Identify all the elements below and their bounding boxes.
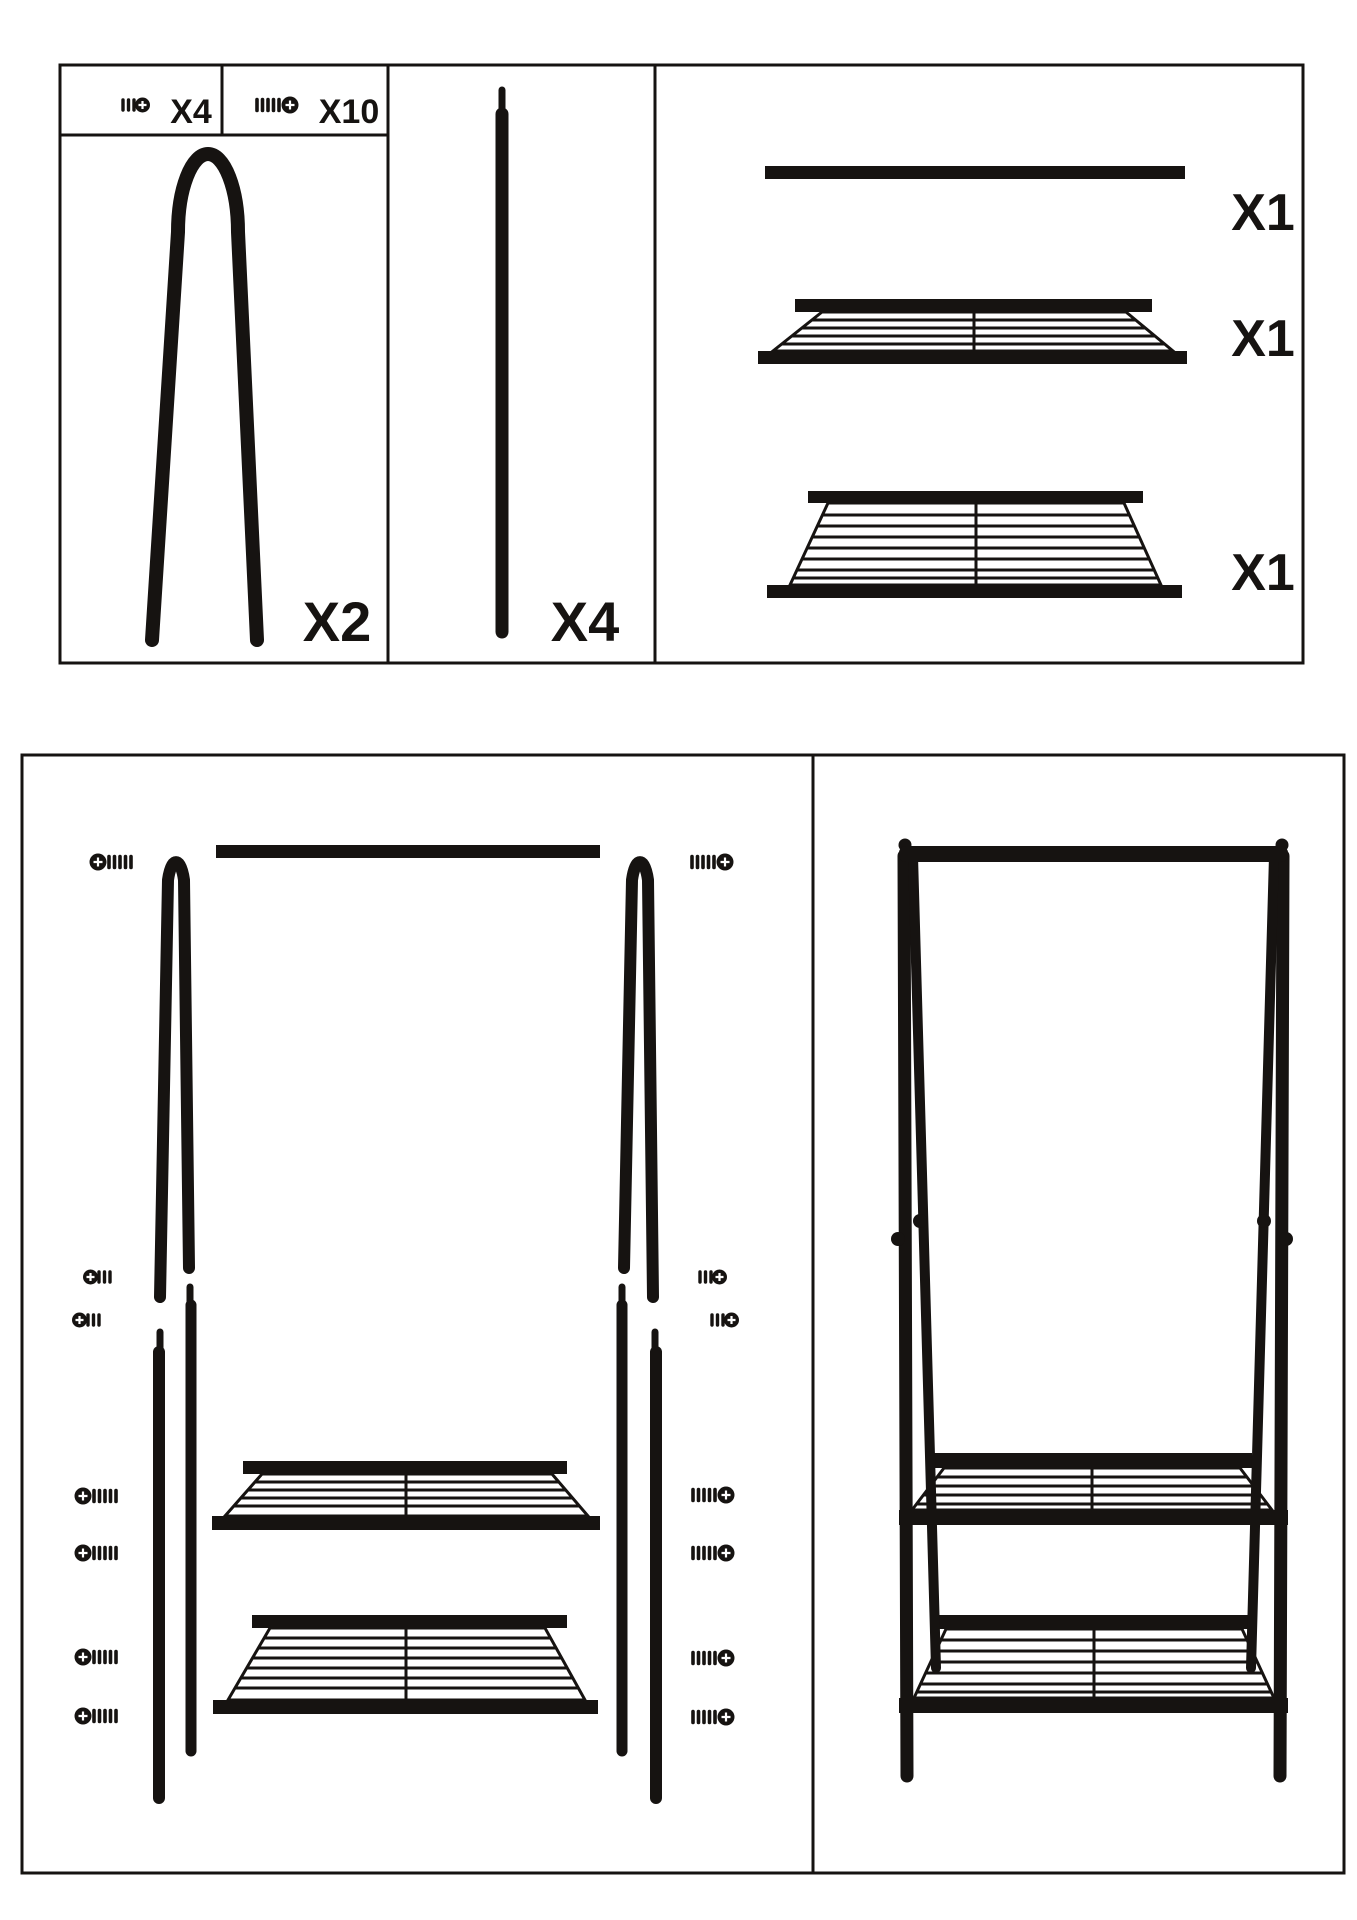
joint-knob	[913, 1214, 927, 1228]
assembled-shelf-lower-back-bar	[934, 1615, 1254, 1629]
exploded-shelf-lower-front-bar	[213, 1700, 598, 1714]
hanging-rod-part	[765, 166, 1185, 179]
shelf-lower-front-bar	[767, 585, 1182, 598]
screw-long-icon	[693, 1545, 735, 1562]
hanging-rod-qty-label: X1	[1231, 184, 1295, 242]
exploded-hanging-rod	[216, 845, 600, 858]
assembled-shelf-upper-back-bar	[932, 1453, 1252, 1468]
screw-short-qty-label: X4	[170, 93, 212, 131]
exploded-view	[72, 845, 739, 1798]
assembled-joint-knobs	[891, 1214, 1293, 1246]
shelf-upper-qty-label: X1	[1231, 310, 1295, 368]
screw-short-icon	[712, 1313, 739, 1328]
screw-long-icon	[693, 1709, 735, 1726]
shelf-upper-back-bar	[795, 299, 1152, 312]
assembled-shelf-upper	[912, 1453, 1272, 1510]
shelf-lower-part	[767, 491, 1182, 598]
assembled-left-front-leg	[904, 856, 907, 1776]
a-frame-qty-label: X2	[303, 590, 372, 653]
assembled-view	[891, 839, 1293, 1777]
screw-long-icon	[75, 1488, 117, 1505]
screw-long-icon	[75, 1545, 117, 1562]
joint-knob	[891, 1232, 905, 1246]
parts-box: X4 X10 X2 X4 X1 X1	[60, 65, 1303, 663]
joint-knob	[1279, 1232, 1293, 1246]
exploded-screws-right	[692, 854, 739, 1726]
shelf-upper-front-bar	[758, 351, 1187, 364]
assembly-box	[22, 755, 1344, 1873]
shelf-upper-part	[758, 299, 1187, 364]
exploded-shelf-upper	[212, 1461, 600, 1530]
assembled-right-back-leg	[1251, 856, 1274, 1668]
instruction-sheet: X4 X10 X2 X4 X1 X1	[0, 0, 1357, 1920]
screw-short-icon	[700, 1270, 727, 1285]
phillips-screw-long-icon	[257, 97, 299, 114]
exploded-shelf-lower-back-bar	[252, 1615, 567, 1628]
assembled-shelf-lower	[914, 1615, 1274, 1698]
screw-long-icon	[75, 1708, 117, 1725]
assembled-shelf-upper-front-bar	[899, 1510, 1288, 1525]
screw-short-glyph	[123, 98, 150, 113]
phillips-screw-short-icon	[123, 98, 150, 113]
shelf-lower-qty-label: X1	[1231, 544, 1295, 602]
screw-long-icon	[75, 1649, 117, 1666]
joint-knob	[1257, 1214, 1271, 1228]
exploded-shelf-upper-front-bar	[212, 1516, 600, 1530]
screw-long-icon	[693, 1487, 735, 1504]
assembled-left-back-leg	[913, 856, 936, 1668]
diagram-svg: X4 X10 X2 X4 X1 X1	[0, 0, 1357, 1920]
shelf-lower-back-bar	[808, 491, 1143, 503]
screw-long-icon	[90, 854, 132, 871]
exploded-screws-left	[72, 854, 131, 1725]
a-frame-leg-part	[152, 154, 257, 640]
assembled-right-front-leg	[1280, 856, 1283, 1776]
screw-long-icon	[693, 1650, 735, 1667]
screw-long-qty-label: X10	[319, 93, 380, 131]
exploded-shelf-lower	[213, 1615, 598, 1714]
pole-qty-label: X4	[551, 590, 620, 653]
exploded-right-a-frame	[624, 862, 653, 1297]
screw-short-icon	[83, 1270, 110, 1285]
exploded-shelf-upper-back-bar	[243, 1461, 567, 1474]
screw-long-icon	[692, 854, 734, 871]
screw-long-glyph	[257, 97, 299, 114]
assembled-hanging-rod	[899, 846, 1288, 862]
exploded-left-a-frame	[160, 862, 189, 1297]
screw-short-icon	[72, 1313, 99, 1328]
a-frame-leg-shape	[152, 154, 257, 640]
assembled-shelf-lower-front-bar	[899, 1698, 1288, 1713]
